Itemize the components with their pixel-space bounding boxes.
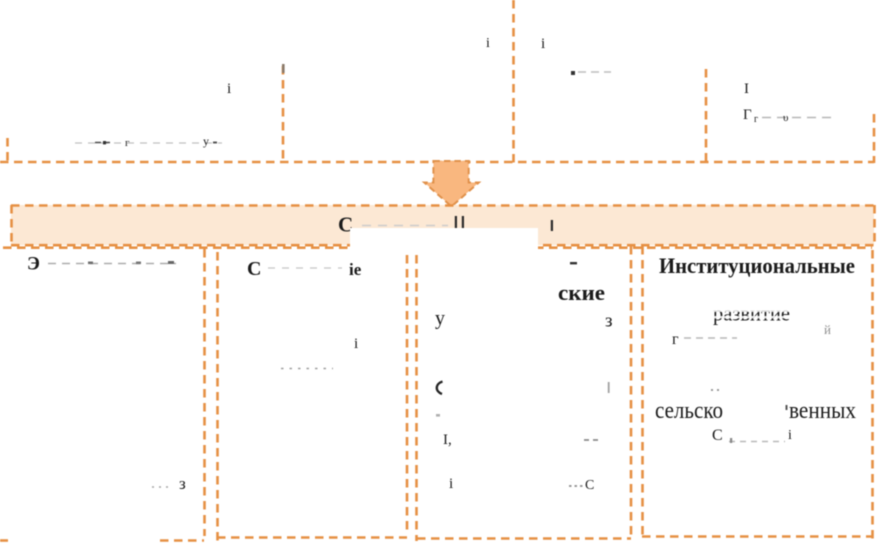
svg-text:з: з [179,474,186,493]
svg-text:у: у [203,134,209,148]
svg-text:Институциональные: Институциональные [659,253,855,278]
svg-text:Э: Э [27,254,40,275]
svg-text:С: С [712,427,723,444]
svg-text:г: г [672,331,679,348]
svg-text:Г: Г [743,107,752,123]
svg-text:і: і [541,36,545,52]
svg-text:г: г [754,114,758,125]
svg-text:υ: υ [783,112,789,124]
svg-text:іе: іе [349,260,362,279]
svg-text:С: С [247,258,261,280]
svg-text:г: г [125,137,130,149]
svg-text:І: І [744,81,749,97]
svg-text:І,: І, [443,432,452,448]
svg-text:і: і [354,336,358,352]
svg-text:С: С [585,478,594,493]
svg-text:й: й [824,322,831,337]
svg-text:венных: венных [789,398,856,424]
svg-text:развитие: развитие [713,301,790,326]
svg-text:і: і [227,81,231,97]
svg-text:сельско: сельско [655,398,723,424]
svg-text:ские: ские [558,280,605,305]
svg-text:і: і [449,476,453,492]
svg-text:у: у [435,308,445,330]
svg-text:з: з [605,311,613,332]
svg-text:і: і [788,428,792,443]
svg-text:і: і [486,36,490,51]
